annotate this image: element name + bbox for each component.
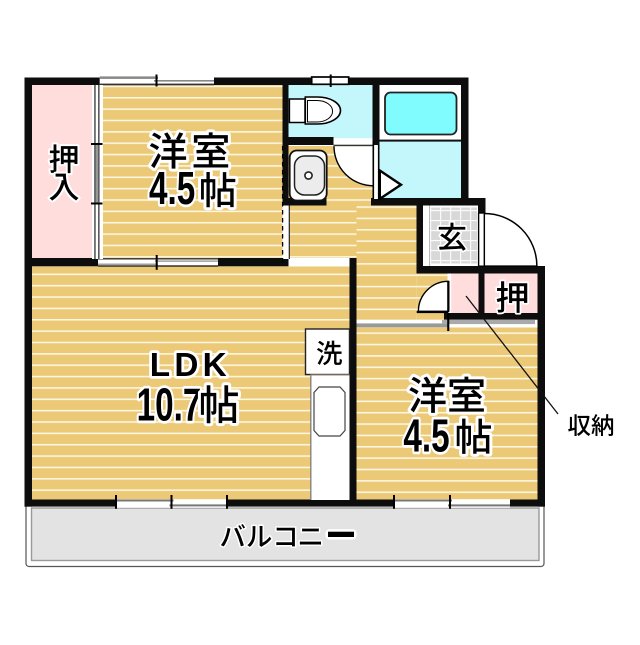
svg-text:4.5: 4.5 bbox=[149, 162, 195, 214]
svg-text:10.7: 10.7 bbox=[137, 379, 202, 431]
svg-text:4.5: 4.5 bbox=[403, 410, 449, 462]
